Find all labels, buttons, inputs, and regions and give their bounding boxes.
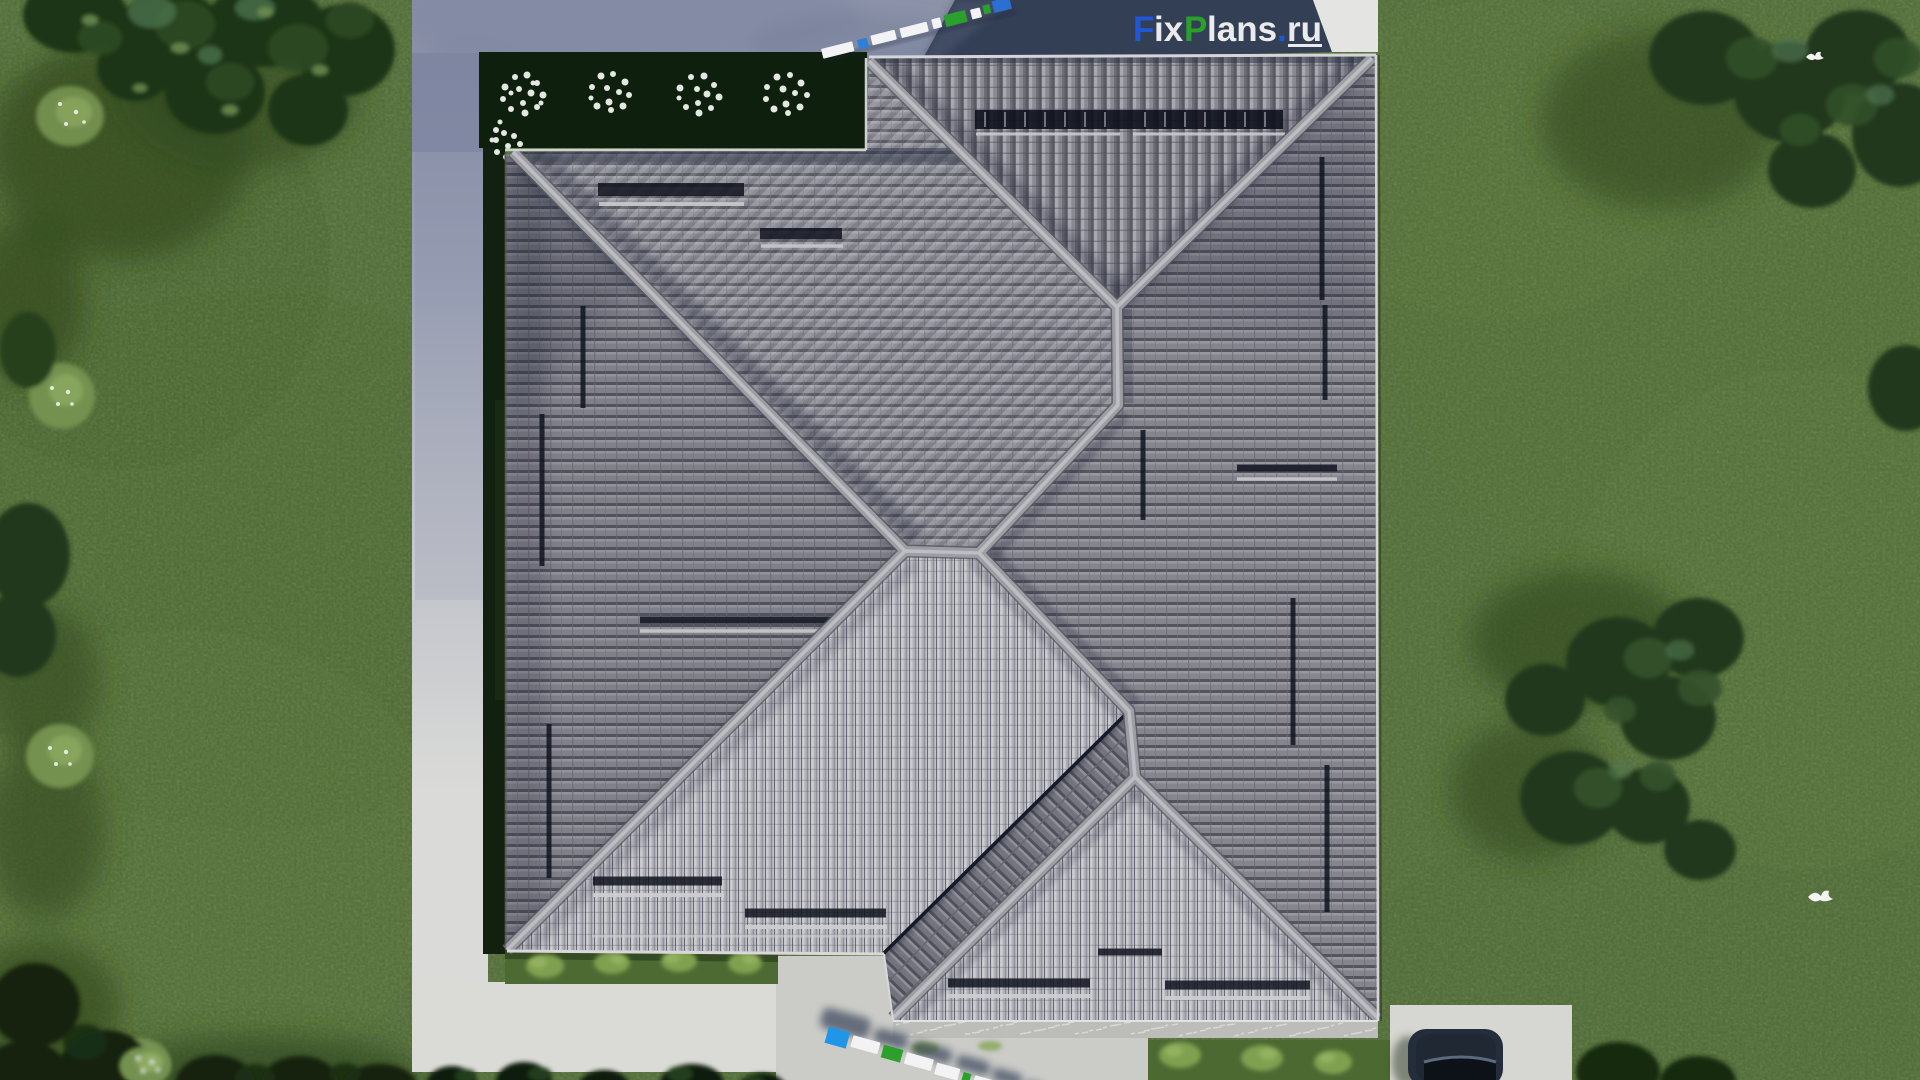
svg-text:.: . (1277, 10, 1287, 49)
svg-text:ix: ix (1154, 10, 1184, 49)
svg-text:F: F (1133, 10, 1154, 49)
svg-text:P: P (1184, 10, 1207, 49)
svg-text:lans: lans (1207, 10, 1277, 49)
svg-text:ru: ru (1287, 10, 1322, 49)
